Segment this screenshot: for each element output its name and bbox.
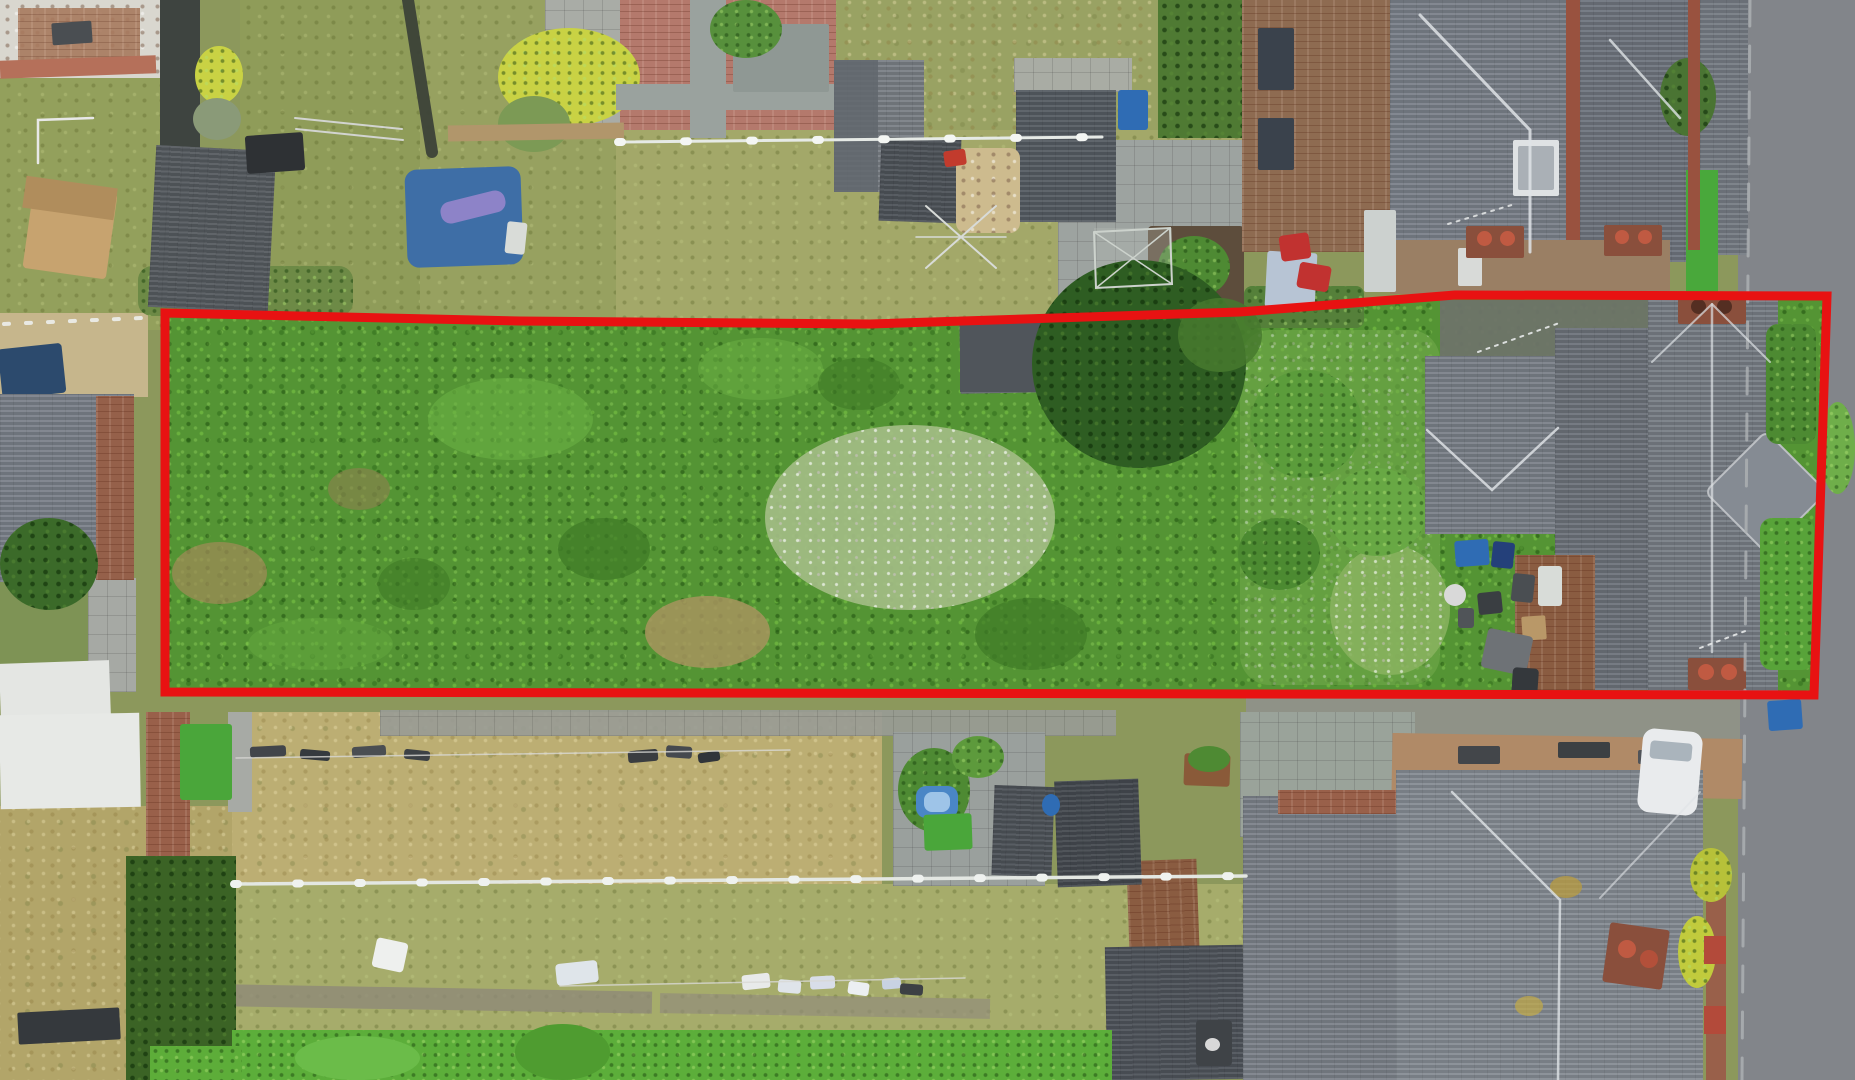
left-house-brick-edge — [96, 396, 134, 580]
washing-item-two — [741, 973, 770, 991]
chimney-pot-a — [1477, 231, 1492, 246]
hedge-strip-top — [1158, 0, 1246, 138]
garden-table-panels — [17, 1007, 121, 1044]
white-kettle-bbq — [1444, 584, 1466, 606]
chimney-pot-c — [1615, 230, 1629, 244]
washing-item-six — [882, 977, 902, 990]
hedge-right-one — [1766, 324, 1816, 444]
washing-sheet — [371, 937, 409, 973]
van-windshield — [1649, 740, 1692, 762]
washing-item-four — [810, 975, 836, 989]
chimney-br-pot-b — [1640, 950, 1658, 968]
turf-patch-bottom — [180, 724, 232, 800]
turf-mat — [923, 813, 972, 851]
bright-bush-one — [1250, 370, 1362, 478]
dark-blue-cover — [0, 343, 66, 399]
hedge-right-two — [1760, 518, 1814, 670]
paddling-pool-water — [924, 792, 950, 812]
bottom-veg-blob-one — [295, 1036, 420, 1080]
clothes-on-line-six — [666, 745, 693, 759]
roof-vent-two — [1558, 742, 1610, 758]
chimney-top-right-one — [1466, 226, 1524, 258]
plot-chimney-bottom-pot-a — [1698, 664, 1714, 680]
facade-window-one — [1258, 28, 1294, 90]
plot-chimney-top — [1678, 294, 1746, 324]
yellow-bush-small — [195, 46, 243, 104]
paving-strip-top — [1014, 58, 1132, 92]
dark-bin-plot — [1511, 667, 1539, 699]
washing-item-five — [847, 981, 870, 997]
washing-item-dark — [900, 983, 924, 996]
blue-wheelie-bin-top — [1118, 90, 1148, 130]
bright-bush-two — [1328, 468, 1426, 556]
moss-dot-two — [1515, 996, 1543, 1016]
roadside-tree — [1820, 402, 1855, 494]
bush-three — [1238, 518, 1320, 590]
lawn-strip-one — [232, 712, 882, 884]
black-bins-pair — [245, 132, 306, 174]
washing-item-one — [555, 960, 599, 986]
wall-red-post-one — [1704, 936, 1726, 964]
white-garden-chair — [504, 221, 527, 255]
dry-patch-two — [172, 542, 267, 604]
white-van — [1636, 728, 1703, 817]
dark-scrub-blob-three — [378, 558, 450, 610]
house-roof-left-gable — [1425, 356, 1560, 534]
blue-crates — [1454, 539, 1490, 567]
plot-chimney-top-pot-a — [1691, 299, 1706, 314]
left-tree — [0, 518, 98, 610]
red-chair-two — [1296, 261, 1332, 292]
navy-box — [1491, 541, 1516, 569]
light-streak-three — [248, 618, 393, 670]
planter-greens — [1188, 746, 1230, 772]
garage-slate-roof — [1016, 90, 1116, 222]
white-chair-frame — [1538, 566, 1562, 606]
roof-bottom-right-house — [1396, 770, 1703, 1080]
light-streak-one — [428, 378, 593, 460]
dry-patch-one — [645, 596, 770, 668]
roof-vent-one — [1458, 746, 1500, 764]
tree-light-edge — [1178, 298, 1262, 372]
blue-bin-road — [1767, 699, 1803, 731]
grey-plants — [193, 98, 241, 140]
red-garden-item — [943, 149, 967, 168]
hedge-bright-end — [150, 1046, 242, 1080]
flowering-patch — [765, 425, 1055, 610]
washing-item-three — [777, 979, 801, 994]
shed-gable-dark-half — [834, 60, 878, 192]
conservatory-roof — [1364, 210, 1396, 292]
brick-ridge-stripe-two — [1688, 0, 1700, 250]
facade-window-two — [1258, 118, 1294, 170]
red-chair-one — [1278, 232, 1311, 262]
white-flower-patch-right — [1330, 545, 1450, 675]
ruin-tarp — [51, 21, 92, 46]
white-building-bottom-left — [0, 713, 141, 809]
patio-plants-two — [952, 736, 1004, 778]
clothes-on-line-one — [250, 745, 287, 758]
brick-edge-bottom-left-house — [1278, 790, 1396, 814]
plot-chimney-bottom — [1688, 658, 1746, 690]
dark-scrub-blob-two — [975, 598, 1087, 670]
light-streak-two — [698, 338, 823, 400]
brick-ridge-stripe-one — [1566, 0, 1580, 240]
round-bush-top — [710, 0, 782, 58]
dark-scrub-blob-one — [558, 518, 650, 580]
wall-red-post-two — [1704, 1006, 1726, 1034]
folding-chair — [1511, 573, 1536, 603]
chimney-pot-d — [1638, 230, 1652, 244]
chimney-pot-b — [1500, 231, 1515, 246]
dark-box — [1477, 591, 1503, 615]
chimney-top-right-two — [1604, 225, 1662, 256]
chimney-br-pot-a — [1618, 940, 1636, 958]
yellow-bush-road-one — [1690, 848, 1732, 902]
dry-patch-three — [328, 468, 390, 510]
clothes-on-line-three — [352, 745, 387, 758]
blue-barrel — [1042, 794, 1060, 816]
bottom-veg-blob-two — [515, 1024, 610, 1080]
wood-fence-strip — [448, 122, 624, 141]
skylight-glass — [1518, 146, 1554, 190]
plot-chimney-top-pot-b — [1717, 299, 1732, 314]
small-grey-item — [1458, 608, 1474, 628]
dark-scrub-blob-four — [818, 358, 900, 410]
shed-d — [1054, 779, 1142, 888]
moss-dot-one — [1550, 876, 1582, 898]
aerial-photograph — [0, 0, 1855, 1080]
chimney-bottom-right — [1602, 922, 1670, 990]
plot-chimney-bottom-pot-b — [1721, 664, 1737, 680]
roof-bottom-left-house — [1243, 796, 1398, 1080]
bin-sticker — [1205, 1038, 1220, 1051]
